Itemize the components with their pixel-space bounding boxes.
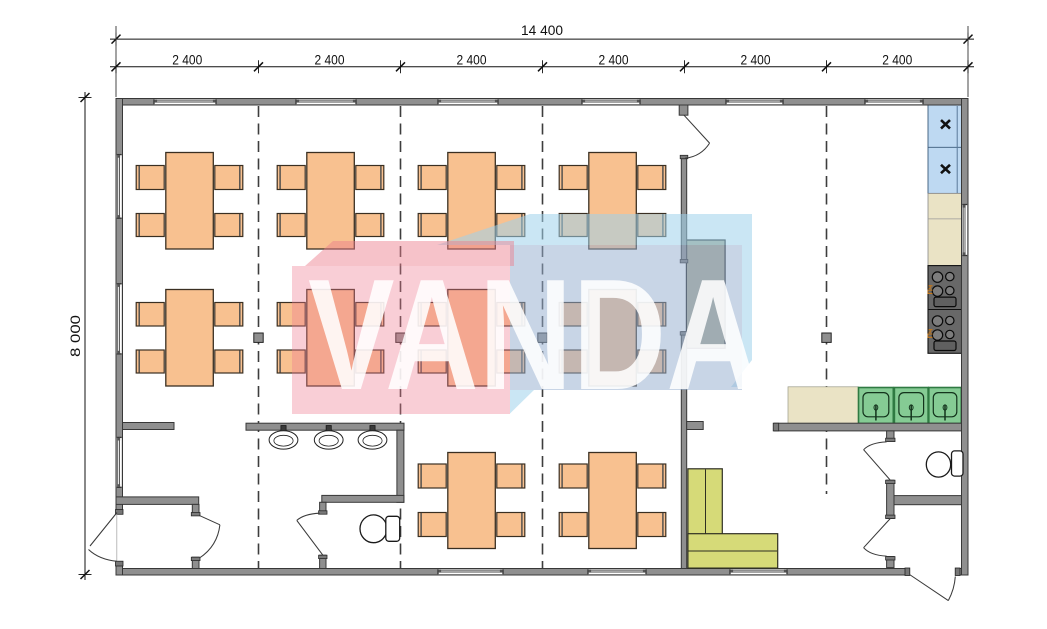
svg-text:Пч: Пч <box>926 329 935 339</box>
svg-text:14 400: 14 400 <box>521 23 563 38</box>
svg-text:Пч: Пч <box>926 285 935 295</box>
svg-text:8 000: 8 000 <box>68 315 83 357</box>
svg-text:2 400: 2 400 <box>172 52 202 67</box>
svg-text:2 400: 2 400 <box>457 52 487 67</box>
svg-text:2 400: 2 400 <box>315 52 345 67</box>
svg-text:VANDA: VANDA <box>308 247 760 423</box>
svg-text:2 400: 2 400 <box>882 52 912 67</box>
svg-text:2 400: 2 400 <box>599 52 629 67</box>
svg-text:2 400: 2 400 <box>741 52 771 67</box>
